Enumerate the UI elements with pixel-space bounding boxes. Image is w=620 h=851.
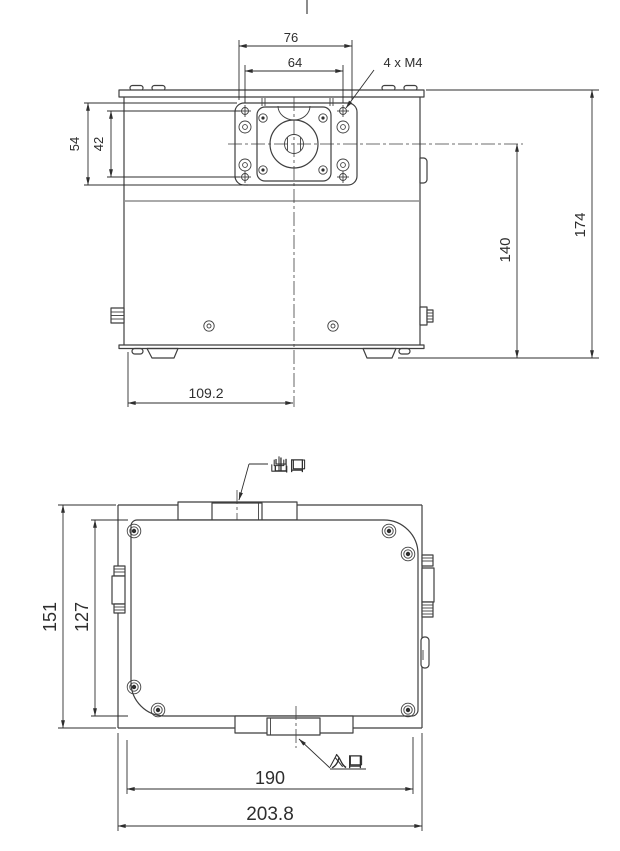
side-connector-left bbox=[111, 308, 124, 323]
dim-text-151: 151 bbox=[40, 602, 60, 632]
front-view: 76 64 4 x M4 54 42 bbox=[67, 0, 599, 407]
dim-text-140: 140 bbox=[497, 237, 514, 262]
outlet-callout: 出口 bbox=[239, 457, 305, 500]
dim-text-42: 42 bbox=[91, 137, 106, 151]
foot-right bbox=[363, 349, 396, 359]
foot-tab-left bbox=[132, 349, 143, 355]
dimension-width-inner: 190 bbox=[127, 737, 413, 794]
dim-text-64: 64 bbox=[288, 55, 302, 70]
dim-text-109-2: 109.2 bbox=[188, 385, 223, 401]
top-view-connector-left bbox=[112, 566, 125, 613]
top-view: 出口 入口 151 127 bbox=[40, 457, 434, 831]
side-connector-upper bbox=[420, 158, 427, 183]
top-plate bbox=[119, 90, 424, 97]
dimension-depth-inner: 127 bbox=[72, 520, 128, 716]
outlet-label: 出口 bbox=[273, 457, 305, 475]
inlet-callout: 入口 bbox=[299, 739, 366, 771]
face-screw bbox=[328, 321, 338, 331]
dim-text-190: 190 bbox=[255, 768, 285, 788]
dim-text-127: 127 bbox=[72, 602, 92, 632]
dimension-bottom-front: 109.2 bbox=[128, 352, 293, 407]
dim-text-54: 54 bbox=[67, 137, 82, 151]
dim-text-203-8: 203.8 bbox=[246, 804, 294, 825]
top-view-connector-right bbox=[421, 555, 434, 668]
dimension-left-inner: 42 bbox=[91, 111, 240, 177]
body-outline-top bbox=[131, 520, 418, 716]
side-connector-right bbox=[420, 307, 433, 325]
small-port-right bbox=[421, 637, 429, 668]
dimension-right-outer: 174 bbox=[426, 90, 599, 358]
foot-left bbox=[147, 349, 178, 359]
thread-callout-text: 4 x M4 bbox=[383, 55, 422, 70]
dim-text-76: 76 bbox=[284, 30, 298, 45]
face-screw bbox=[204, 321, 214, 331]
foot-tab-right bbox=[399, 349, 410, 355]
technical-drawing: 76 64 4 x M4 54 42 bbox=[0, 0, 620, 851]
dim-text-174: 174 bbox=[572, 212, 589, 237]
drawing-sheet: 76 64 4 x M4 54 42 bbox=[0, 0, 620, 851]
thread-callout: 4 x M4 bbox=[346, 55, 423, 108]
dimension-right-inner: 140 bbox=[398, 144, 599, 358]
inlet-label: 入口 bbox=[331, 754, 363, 771]
motor-mount bbox=[235, 98, 357, 185]
